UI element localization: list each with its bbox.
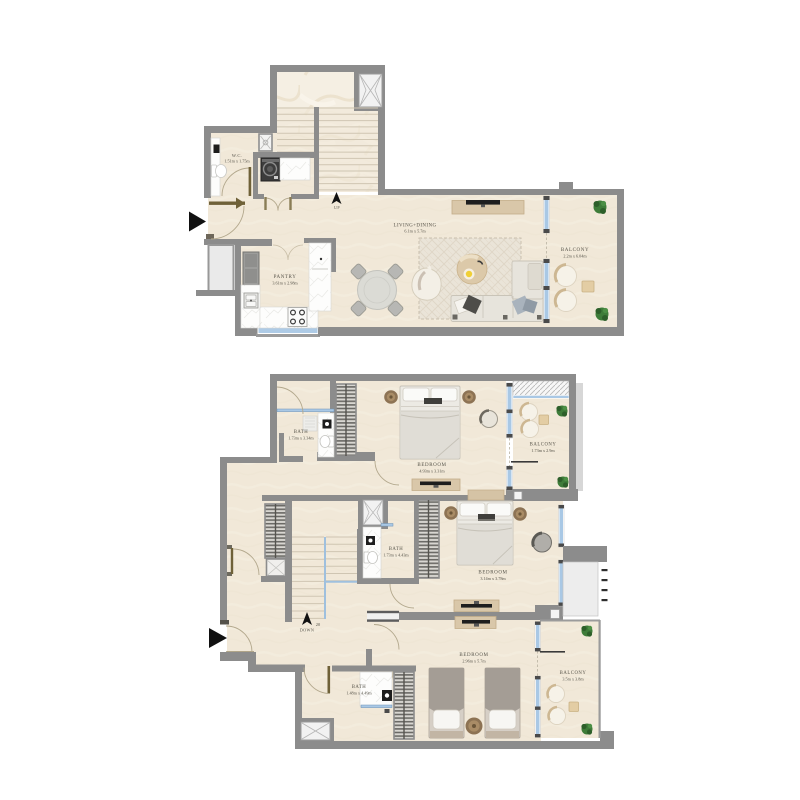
svg-text:BEDROOM: BEDROOM (478, 571, 507, 576)
svg-text:W.C.: W.C. (232, 153, 242, 158)
svg-text:1.73m x 3.34m: 1.73m x 3.34m (288, 436, 314, 441)
svg-text:BALCONY: BALCONY (561, 248, 589, 253)
svg-text:2.2m x 6.04m: 2.2m x 6.04m (563, 254, 587, 259)
svg-text:BEDROOM: BEDROOM (417, 463, 446, 468)
svg-text:3.5m x 3.8m: 3.5m x 3.8m (562, 677, 584, 682)
svg-text:UP: UP (334, 205, 340, 210)
svg-text:1.48m x 4.49m: 1.48m x 4.49m (346, 691, 372, 696)
svg-text:1.51m x 1.75m: 1.51m x 1.75m (224, 159, 250, 164)
svg-text:PANTRY: PANTRY (274, 275, 297, 280)
svg-text:3.61m x 2.98m: 3.61m x 2.98m (272, 281, 298, 286)
svg-text:BALCONY: BALCONY (560, 671, 587, 676)
svg-text:BATH: BATH (352, 685, 367, 690)
svg-text:2.96m x 5.7m: 2.96m x 5.7m (462, 659, 486, 664)
svg-text:6.1m x 5.7m: 6.1m x 5.7m (404, 229, 426, 234)
svg-text:BATH: BATH (389, 547, 404, 552)
svg-text:DOWN: DOWN (300, 628, 315, 633)
svg-text:BEDROOM: BEDROOM (459, 653, 488, 658)
svg-text:4.93m x 3.31m: 4.93m x 3.31m (419, 469, 445, 474)
svg-text:BALCONY: BALCONY (530, 443, 557, 448)
svg-text:1.73m x 4.43m: 1.73m x 4.43m (383, 553, 409, 558)
svg-text:3.14m x 3.78m: 3.14m x 3.78m (480, 576, 506, 581)
svg-text:1.73m x 2.9m: 1.73m x 2.9m (531, 448, 555, 453)
svg-text:BATH: BATH (294, 430, 309, 435)
